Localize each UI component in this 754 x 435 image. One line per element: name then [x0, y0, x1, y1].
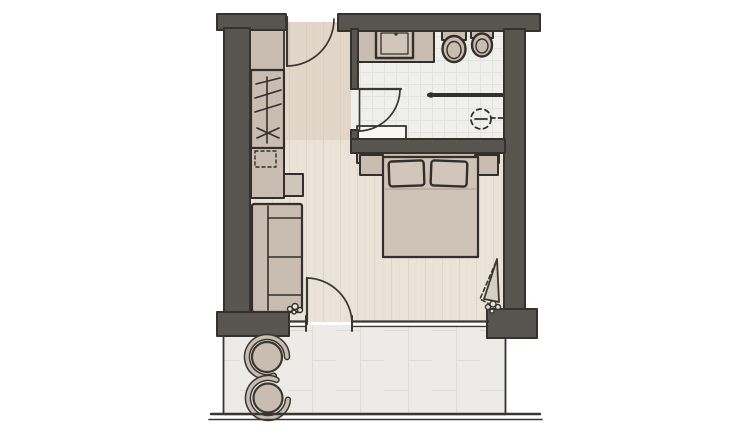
minibar-cabinet [251, 148, 284, 198]
pillow-left [389, 160, 425, 186]
sofa [252, 204, 302, 312]
wall-left [224, 28, 250, 314]
tv-board [284, 174, 303, 196]
chair-2-seat [254, 384, 283, 413]
wardrobe-upper-cabinet [249, 28, 284, 70]
floor-plan-canvas [0, 0, 754, 435]
floor-plan-image [0, 0, 754, 435]
shower-partition-cap [428, 92, 434, 98]
wall-bedroom-bathroom [351, 139, 505, 153]
bath-mat [357, 126, 406, 140]
wall-bottom-left-block [217, 312, 289, 336]
chair-1-seat [252, 342, 282, 372]
pillow-right [431, 160, 468, 186]
nightstand-left [360, 155, 383, 175]
wall-bathroom-left-upper [351, 29, 358, 89]
washbasin-drain [394, 32, 397, 35]
floor-entry-tint [286, 22, 351, 140]
wall-bottom-right-block [487, 309, 537, 338]
wall-right [504, 29, 525, 312]
